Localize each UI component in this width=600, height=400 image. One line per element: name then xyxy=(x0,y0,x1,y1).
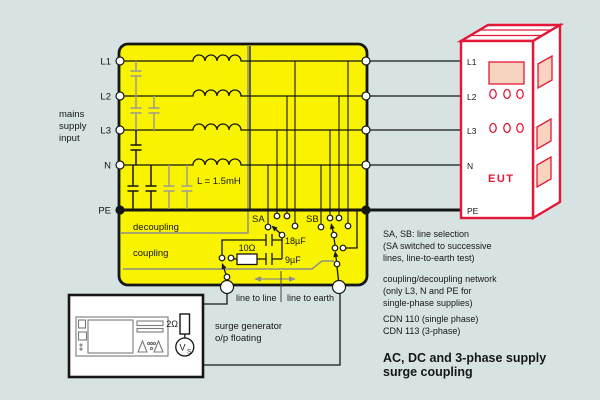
note-line: CDN 113 (3-phase) xyxy=(383,326,460,336)
coupling-resistor xyxy=(237,254,257,265)
note-line: coupling/decoupling network xyxy=(383,274,497,284)
output-terminal-hot xyxy=(221,281,234,294)
eut-port-l3: L3 xyxy=(467,126,477,136)
mains-caption-1: mains xyxy=(59,109,85,120)
pe-node-right xyxy=(361,205,370,214)
eut-name-label: EUT xyxy=(488,173,515,185)
mode-line-to-line-label: line to line xyxy=(236,293,277,303)
note-line: lines, line-to-earth test) xyxy=(383,253,475,263)
note-line: (SA switched to successive xyxy=(383,241,492,251)
eut-port-l1: L1 xyxy=(467,57,477,67)
eut-port-pe: PE xyxy=(467,206,479,216)
note-line: CDN 110 (single phase) xyxy=(383,314,478,324)
eut-port-l2: L2 xyxy=(467,92,477,102)
note-line: single-phase supplies) xyxy=(383,298,473,308)
eut-box: EUT L1 L2 L3 N PE xyxy=(461,25,560,218)
note-line: (only L3, N and PE for xyxy=(383,286,472,296)
mains-label-l2: L2 xyxy=(100,92,111,103)
generator-impedance-label: 2Ω xyxy=(166,319,178,329)
source-label-v: V xyxy=(180,343,186,353)
eut-display xyxy=(489,62,524,84)
mains-label-pe: PE xyxy=(98,206,111,217)
coupling-resistor-label: 10Ω xyxy=(239,243,256,253)
inductor-value-label: L = 1.5mH xyxy=(197,176,241,187)
title-line-1: AC, DC and 3-phase supply xyxy=(383,351,546,365)
mains-caption-3: input xyxy=(59,133,80,144)
mains-label-l1: L1 xyxy=(100,57,111,68)
cap-9uf-label: 9µF xyxy=(285,255,301,265)
mains-label-l3: L3 xyxy=(100,126,111,137)
switch-sa-label: SA xyxy=(252,214,265,225)
mains-label-n: N xyxy=(104,161,111,172)
cap-18uf-label: 18µF xyxy=(285,236,306,246)
switch-sb-label: SB xyxy=(306,214,319,225)
generator-impedance-resistor xyxy=(180,314,190,334)
eut-port-n: N xyxy=(467,161,473,171)
coupling-label: coupling xyxy=(133,248,168,259)
surge-coupling-diagram: V S 2Ω EUT L1 L2 L3 N PE L1 L2 xyxy=(0,0,600,400)
title-line-2: surge coupling xyxy=(383,365,473,379)
mains-caption-2: supply xyxy=(59,121,87,132)
surge-generator-box xyxy=(69,295,203,377)
pe-node-left xyxy=(115,205,124,214)
output-terminal-return xyxy=(333,281,346,294)
note-line: SA, SB: line selection xyxy=(383,229,469,239)
decoupling-label: decoupling xyxy=(133,222,179,233)
generator-caption-2: o/p floating xyxy=(215,333,261,344)
generator-caption-1: surge generator xyxy=(215,321,282,332)
mode-line-to-earth-label: line to earth xyxy=(287,293,334,303)
source-label-sub: S xyxy=(187,350,191,356)
